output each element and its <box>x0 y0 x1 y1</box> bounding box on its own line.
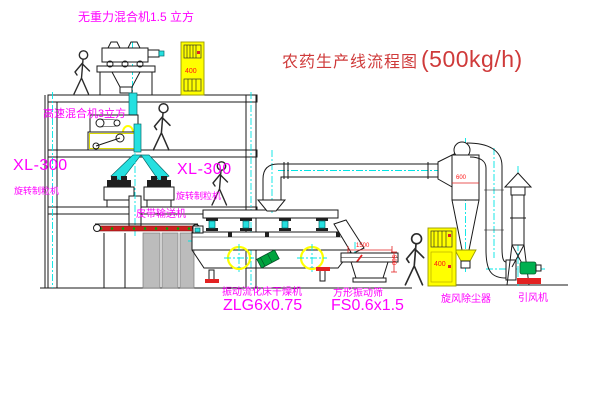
label-cyclone: 旋风除尘器 <box>441 295 491 305</box>
dim-right-cabinet: 400 <box>434 261 446 268</box>
person-roof <box>74 51 90 94</box>
dim-screen-height: 500 <box>390 255 396 265</box>
title-text: 农药生产线流程图 <box>282 48 418 72</box>
exhaust-duct <box>258 150 464 213</box>
dim-screen-length: 1500 <box>356 243 369 249</box>
ground-lines <box>40 285 568 288</box>
drawing-title: 农药生产线流程图 (500kg/h) <box>282 46 523 73</box>
belt-conveyor <box>94 224 200 288</box>
cad-flow-diagram: 农药生产线流程图 (500kg/h) 无重力混合机1.5 立方 高速混合机3立方… <box>0 0 600 403</box>
fluid-bed-dryer <box>188 210 356 283</box>
label-granulator-right-name: 旋转制粒机 <box>176 192 221 201</box>
control-cabinet-right <box>428 228 456 286</box>
label-high-speed-mixer: 高速混合机3立方 <box>43 109 126 120</box>
label-granulator-left-name: 旋转制粒机 <box>14 187 59 196</box>
label-fan: 引风机 <box>518 294 548 304</box>
title-capacity: (500kg/h) <box>421 46 523 73</box>
dryer-motor <box>257 250 279 268</box>
high-speed-mixer <box>88 115 141 152</box>
dryer-connectors <box>206 218 328 231</box>
weightless-mixer <box>97 42 164 118</box>
induced-draft-fan <box>517 262 541 284</box>
label-granulator-right-model: XL-300 <box>177 162 232 178</box>
label-weightless-mixer: 无重力混合机1.5 立方 <box>78 11 194 23</box>
label-belt-conveyor: 皮带输送机 <box>136 210 186 220</box>
person-floor2 <box>153 104 170 150</box>
label-dryer-model: ZLG6x0.75 <box>223 298 302 314</box>
splitter-hopper <box>111 155 169 181</box>
dim-top-cabinet: 400 <box>185 68 197 75</box>
vibrating-screen <box>334 220 398 282</box>
dim-cyclone-diameter: 600 <box>456 175 466 181</box>
label-screen-model: FS0.6x1.5 <box>331 298 404 314</box>
person-ground <box>405 234 423 285</box>
label-granulator-left-model: XL-300 <box>13 158 68 174</box>
granulator-right <box>144 176 174 207</box>
